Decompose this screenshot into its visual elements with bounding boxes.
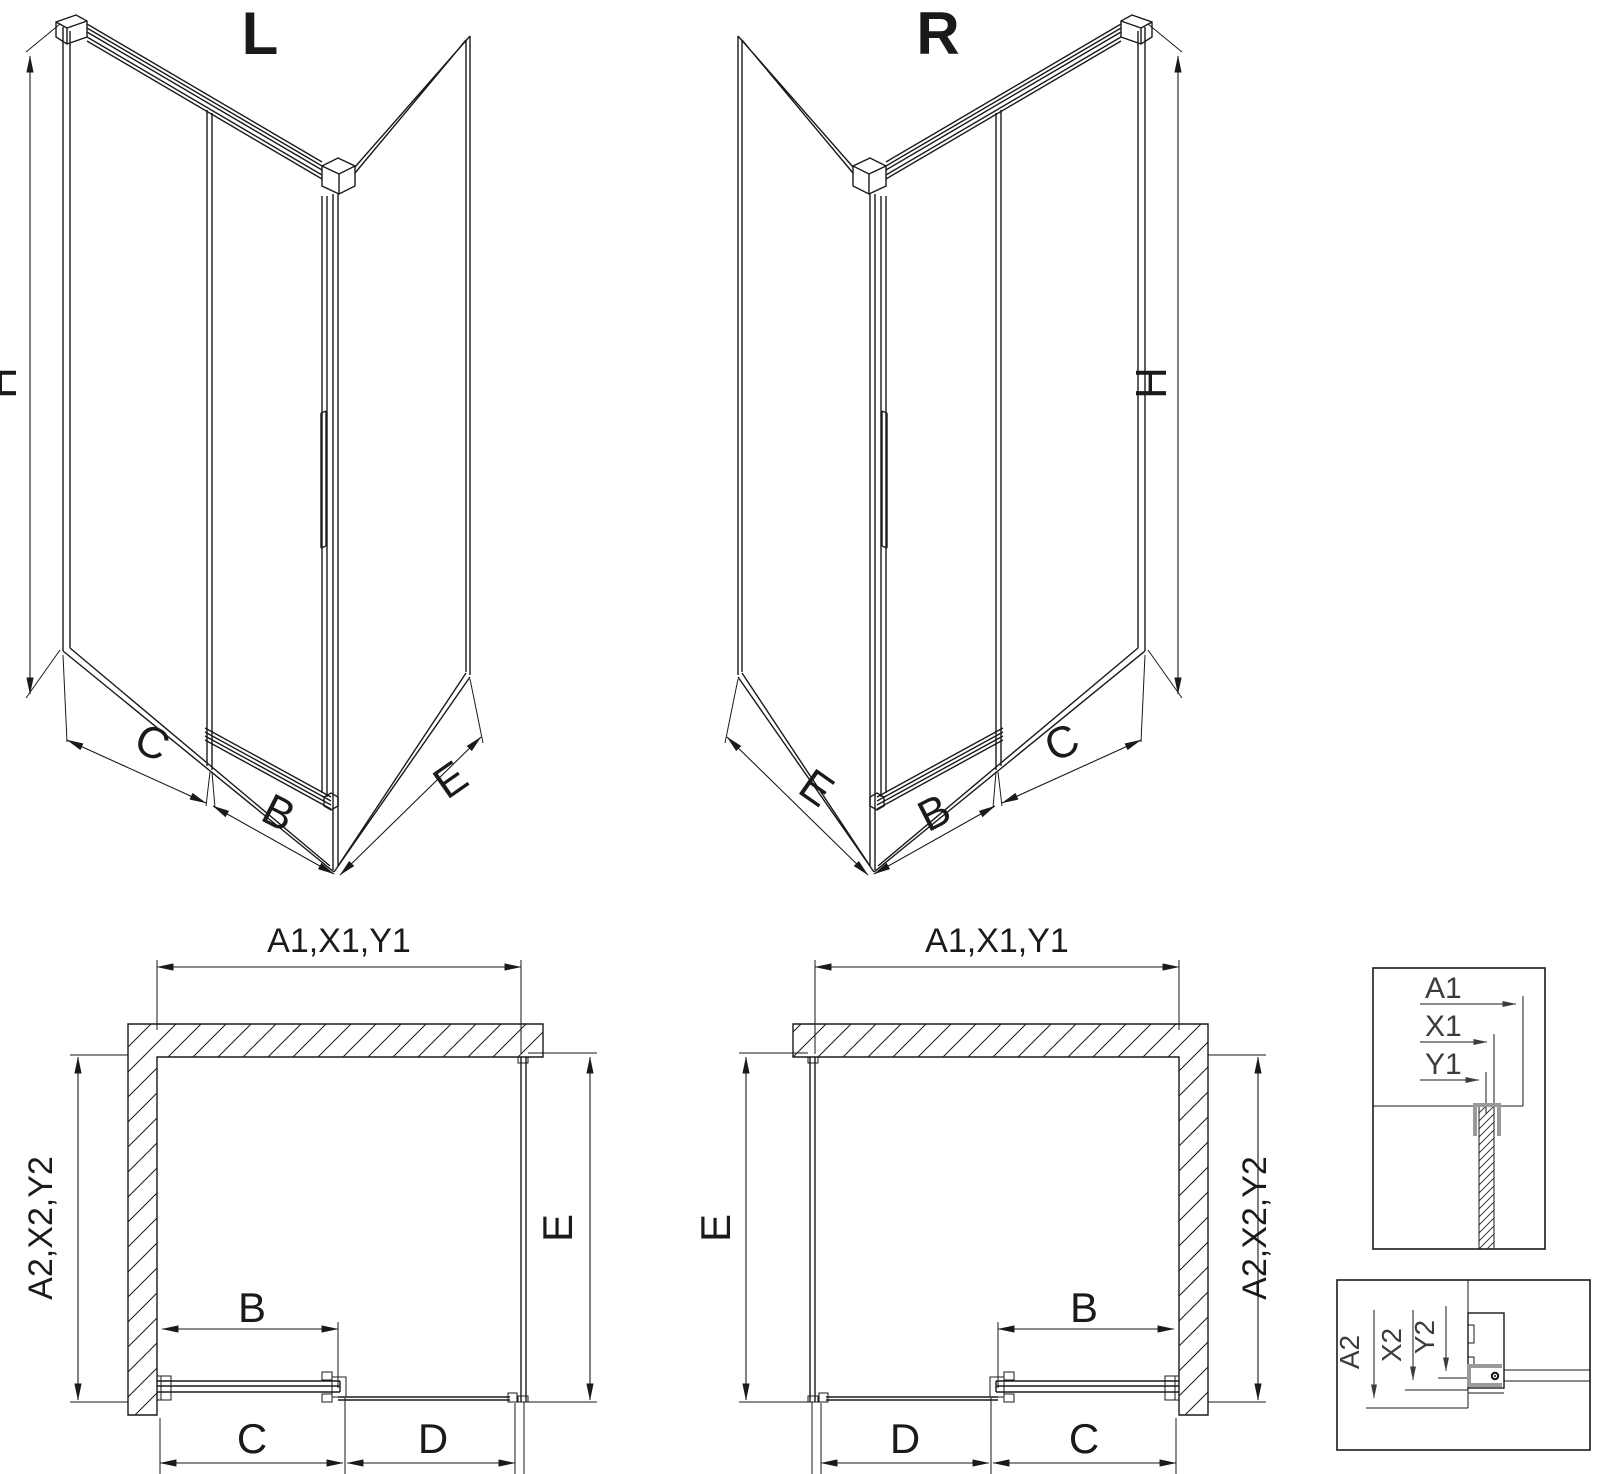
dim-label-h-right: H (1127, 367, 1176, 399)
wall-hatch-left (128, 1024, 543, 1415)
plan-dim-depth-right: A2,X2,Y2 (1236, 1156, 1274, 1300)
dim-label-c-right: C (1037, 714, 1087, 772)
detail-view-depth-refs: A2 X2 Y2 (1334, 1280, 1590, 1450)
shower-enclosure-technical-drawing: L H C B E R H E B C A1,X1,Y1 A2,X2,Y2 E … (0, 0, 1600, 1474)
detail-view-width-refs: A1 X1 Y1 (1373, 968, 1545, 1249)
detail-box-bottom (1337, 1280, 1590, 1450)
iso-linework-left (26, 15, 483, 875)
dim-label-e-left: E (425, 752, 477, 809)
detail-label-x2: X2 (1376, 1328, 1407, 1362)
plan-dim-depth-left: A2,X2,Y2 (22, 1156, 60, 1300)
dim-label-e-right: E (790, 760, 842, 817)
detail-label-x1: X1 (1425, 1010, 1462, 1043)
plan-view-left: A1,X1,Y1 A2,X2,Y2 E B C D (22, 922, 597, 1474)
plan-dim-c-left: C (237, 1415, 267, 1462)
plan-dim-c-right: C (1069, 1415, 1099, 1462)
plan-dim-e-right: E (692, 1214, 739, 1242)
iso-view-right: R H E B C (725, 0, 1182, 875)
screw-center-dot (1494, 1375, 1496, 1377)
plan-dim-width-left: A1,X1,Y1 (267, 922, 411, 960)
plan-dim-width-right: A1,X1,Y1 (925, 922, 1069, 960)
drawing-canvas: L H C B E R H E B C A1,X1,Y1 A2,X2,Y2 E … (0, 0, 1600, 1474)
glass-section-hatch (1479, 1106, 1494, 1249)
view-title-right: R (916, 0, 959, 67)
plan-view-right: A1,X1,Y1 E A2,X2,Y2 B D C (692, 922, 1274, 1474)
iso-view-left: L H C B E (0, 0, 483, 875)
detail-label-y1: Y1 (1425, 1048, 1462, 1081)
dim-label-h-left: H (0, 367, 26, 399)
plan-dim-d-right: D (890, 1415, 920, 1462)
plan-dim-e-left: E (534, 1214, 581, 1242)
detail-label-a2: A2 (1334, 1335, 1365, 1369)
plan-dim-b-left: B (238, 1284, 266, 1331)
detail-label-y2: Y2 (1409, 1320, 1440, 1354)
view-title-left: L (242, 0, 279, 67)
plan-dim-d-left: D (418, 1415, 448, 1462)
dim-label-c-left: C (127, 714, 177, 772)
wall-hatch-right (793, 1024, 1208, 1415)
iso-linework-right (725, 15, 1182, 875)
detail-label-a1: A1 (1425, 972, 1462, 1005)
plan-dim-b-right: B (1070, 1284, 1098, 1331)
